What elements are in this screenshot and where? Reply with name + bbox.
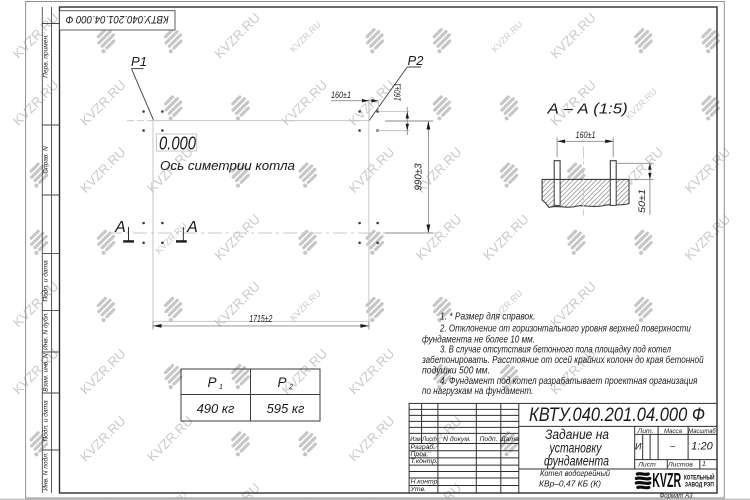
svg-text:Котел водогрейный: Котел водогрейный <box>540 469 610 478</box>
svg-text:Масштаб: Масштаб <box>688 427 717 435</box>
svg-text:P: P <box>207 375 216 390</box>
svg-text:160±1: 160±1 <box>331 90 351 100</box>
svg-text:N докум.: N докум. <box>443 435 471 443</box>
svg-text:Подп. и дата: Подп. и дата <box>42 400 50 442</box>
svg-text:фундамента: фундамента <box>544 454 609 469</box>
svg-text:1: 1 <box>702 461 706 468</box>
svg-text:P1: P1 <box>131 54 147 69</box>
svg-text:А – А (1:5): А – А (1:5) <box>547 102 628 118</box>
svg-text:Подп. и дата: Подп. и дата <box>42 260 50 302</box>
svg-text:Лит.: Лит. <box>637 428 654 435</box>
svg-text:595 кг: 595 кг <box>267 401 305 416</box>
svg-text:Т.контр.: Т.контр. <box>411 458 439 465</box>
svg-text:P2: P2 <box>408 53 425 68</box>
svg-text:Инв. N дубл.: Инв. N дубл. <box>42 312 50 350</box>
svg-text:1: 1 <box>219 384 223 391</box>
svg-text:A: A <box>186 219 198 236</box>
svg-text:подушки 500 мм.: подушки 500 мм. <box>422 366 490 377</box>
svg-text:Взам. инв. N: Взам. инв. N <box>43 353 50 392</box>
svg-text:1:20: 1:20 <box>691 441 713 453</box>
svg-text:160±1: 160±1 <box>393 83 403 101</box>
svg-text:Утв.: Утв. <box>410 486 427 493</box>
svg-text:50±1: 50±1 <box>637 189 648 213</box>
svg-text:Дата: Дата <box>500 436 519 443</box>
svg-text:A: A <box>114 219 126 236</box>
svg-text:–: – <box>669 441 676 451</box>
svg-text:1. * Размер для справок.: 1. * Размер для справок. <box>440 312 536 323</box>
svg-text:Формат А3: Формат А3 <box>660 493 693 500</box>
svg-text:Изм.Лист: Изм.Лист <box>410 436 437 443</box>
svg-text:Листов: Листов <box>667 461 693 468</box>
svg-text:И: И <box>635 441 642 451</box>
svg-text:160±1: 160±1 <box>576 130 596 141</box>
svg-text:Разраб.: Разраб. <box>411 443 436 451</box>
svg-text:забетонировать. Расстояние от: забетонировать. Расстояние от осей крайн… <box>421 354 704 366</box>
svg-text:2: 2 <box>288 384 293 391</box>
svg-text:Ось симетрии котла: Ось симетрии котла <box>160 159 295 173</box>
svg-text:490 кг: 490 кг <box>197 401 235 416</box>
svg-text:КВТУ.040.201.04.000 Ф: КВТУ.040.201.04.000 Ф <box>529 404 705 426</box>
svg-text:КВр–0,47 КБ (К): КВр–0,47 КБ (К) <box>539 480 601 489</box>
svg-text:Подп.: Подп. <box>479 435 497 443</box>
svg-text:1715±2: 1715±2 <box>249 314 272 325</box>
svg-text:Перв. примен.: Перв. примен. <box>43 34 50 78</box>
svg-text:P: P <box>277 375 286 390</box>
svg-text:Справ. N: Справ. N <box>43 146 50 174</box>
svg-text:Инв. N подл.: Инв. N подл. <box>42 452 50 491</box>
svg-text:2. Отклонение от горизонтально: 2. Отклонение от горизонтального уровня … <box>439 324 691 335</box>
svg-text:0.000: 0.000 <box>159 134 196 154</box>
svg-text:990±3: 990±3 <box>414 163 425 190</box>
svg-text:по нагрузкам на фундамент.: по нагрузкам на фундамент. <box>422 385 533 397</box>
svg-text:Пров.: Пров. <box>411 451 429 458</box>
svg-text:KVZR: KVZR <box>652 470 681 492</box>
svg-text:3. В случае отсутствия бетонно: 3. В случае отсутствия бетонного пола пл… <box>440 344 671 356</box>
svg-text:КОТЕЛЬНЫЙ: КОТЕЛЬНЫЙ <box>684 474 715 482</box>
svg-text:КВТУ.040.201.04.000 Ф: КВТУ.040.201.04.000 Ф <box>65 13 168 25</box>
svg-text:Н.контр.: Н.контр. <box>411 479 440 486</box>
svg-text:ЗАВОД РЭП: ЗАВОД РЭП <box>685 482 714 488</box>
svg-text:Лист: Лист <box>637 461 656 468</box>
svg-text:Масса: Масса <box>664 428 682 435</box>
